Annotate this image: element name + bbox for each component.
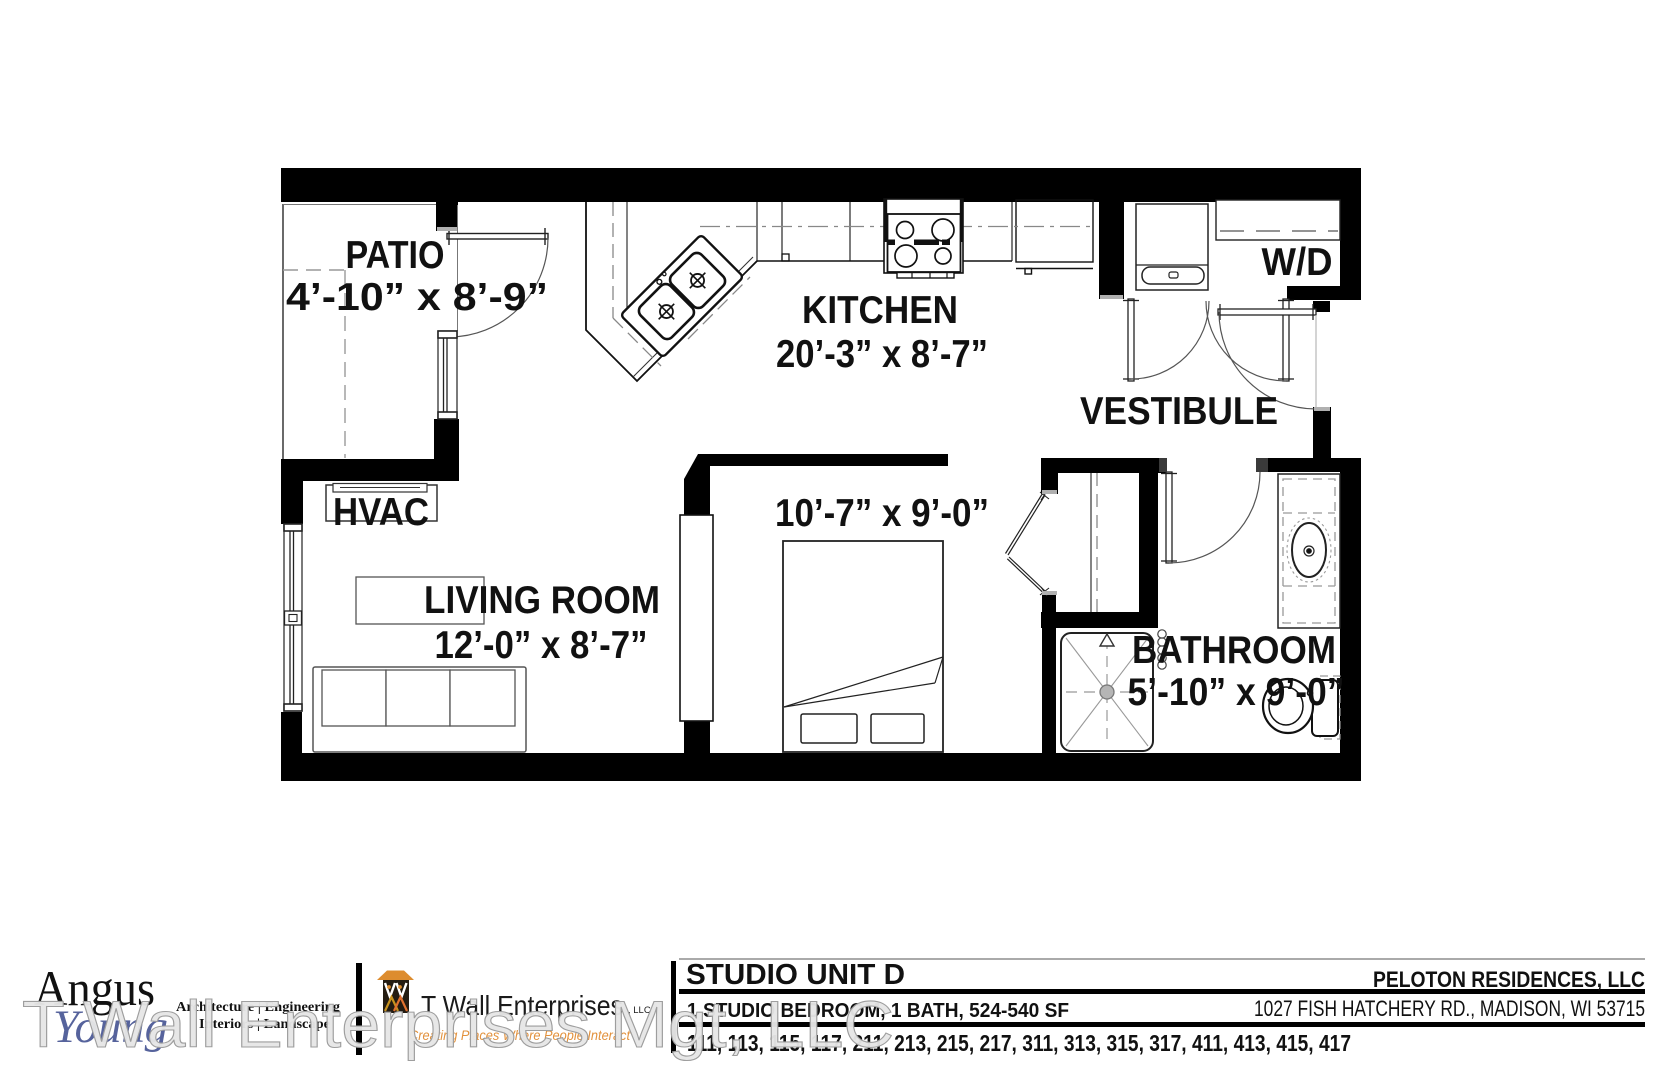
svg-text:HVAC: HVAC [333, 491, 429, 534]
svg-text:5’-10” x 9’-0”: 5’-10” x 9’-0” [1128, 671, 1345, 714]
svg-text:10’-7” x 9’-0”: 10’-7” x 9’-0” [775, 492, 989, 535]
svg-text:KITCHEN: KITCHEN [802, 289, 958, 332]
svg-text:W/D: W/D [1262, 241, 1333, 284]
svg-text:4’-10” x 8’-9”: 4’-10” x 8’-9” [286, 276, 548, 319]
svg-text:PELOTON RESIDENCES, LLC: PELOTON RESIDENCES, LLC [1373, 967, 1645, 992]
svg-text:VESTIBULE: VESTIBULE [1080, 390, 1278, 433]
svg-text:20’-3” x 8’-7”: 20’-3” x 8’-7” [776, 333, 988, 376]
svg-text:BATHROOM: BATHROOM [1132, 629, 1336, 672]
svg-text:LIVING ROOM: LIVING ROOM [424, 579, 660, 622]
svg-text:PATIO: PATIO [346, 234, 445, 277]
svg-text:12’-0” x 8’-7”: 12’-0” x 8’-7” [435, 624, 648, 667]
svg-text:T Wall Enterprises Mgt, LLC: T Wall Enterprises Mgt, LLC [22, 987, 894, 1061]
svg-text:1027 FISH HATCHERY RD., MADISO: 1027 FISH HATCHERY RD., MADISON, WI 5371… [1254, 996, 1645, 1021]
